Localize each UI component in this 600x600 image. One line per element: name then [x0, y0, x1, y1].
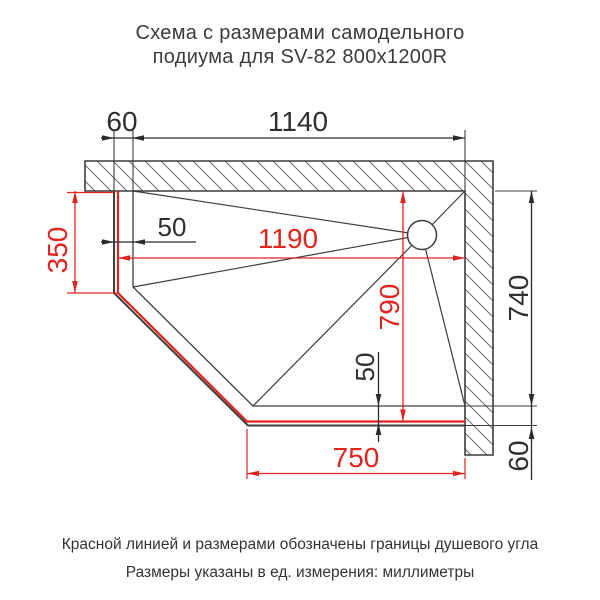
dim-label-shower-side-left: 350: [42, 227, 73, 274]
wall-corner-shape: [85, 161, 493, 455]
dim-label-rim-inset-left: 50: [158, 212, 187, 242]
arrow-750-left: [247, 471, 259, 477]
arrow-1140-right: [453, 135, 465, 141]
arrow-740-top: [529, 191, 535, 203]
dim-label-shower-side-bottom: 750: [333, 442, 380, 473]
arrow-50left-a: [102, 239, 114, 245]
dim-label-wall-offset-top: 60: [106, 106, 137, 137]
podium-drawing: 60 1140 740 60 50 50 350 1190 790 750: [0, 0, 600, 600]
arrow-1190-right: [453, 255, 465, 261]
dim-label-slope-width-top: 1140: [268, 106, 328, 137]
arrow-50bottom-a: [376, 394, 382, 406]
arrow-750-right: [453, 471, 465, 477]
dim-label-shower-depth: 790: [374, 284, 405, 331]
dim-label-shower-width: 1190: [258, 223, 318, 254]
slope-line-bottom-right: [422, 235, 465, 406]
arrow-50left-b: [133, 239, 145, 245]
dim-label-rim-inset-bottom: 50: [350, 353, 380, 382]
drain-circle: [408, 221, 437, 250]
arrow-740-bottom: [529, 394, 535, 406]
footer-note-red-boundary: Красной линией и размерами обозначены гр…: [0, 536, 600, 554]
dim-label-podium-edge-right: 60: [503, 440, 534, 471]
arrow-790-bottom: [400, 410, 406, 422]
arrow-790-top: [400, 191, 406, 203]
dim-label-slope-height-right: 740: [503, 275, 534, 322]
footer-note-units: Размеры указаны в ед. измерения: миллиме…: [0, 564, 600, 582]
walls: [85, 161, 493, 455]
arrow-350-bottom: [72, 281, 78, 293]
schematic-page: Схема с размерами самодельного подиума д…: [0, 0, 600, 600]
arrow-1190-left: [118, 255, 130, 261]
arrow-60right-bottom: [529, 427, 535, 439]
